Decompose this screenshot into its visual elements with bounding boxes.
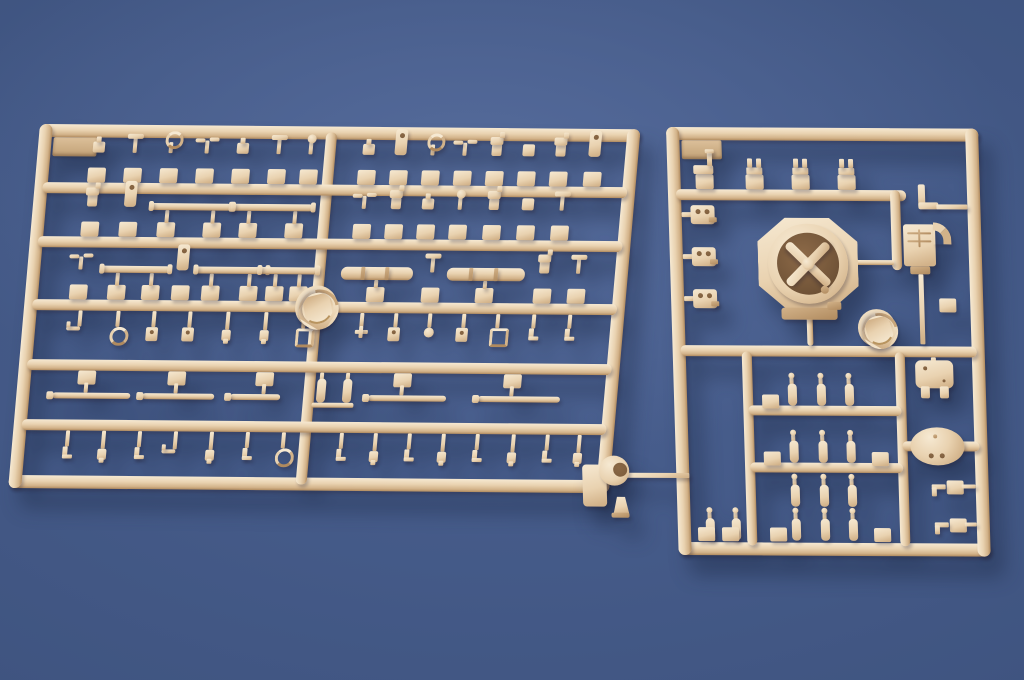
- plastic-piece: [230, 202, 236, 212]
- plastic-piece: [593, 134, 598, 139]
- part-tab: [239, 286, 258, 301]
- part-tab: [791, 175, 809, 190]
- plastic-piece: [438, 461, 443, 466]
- part-tab: [265, 286, 284, 301]
- part-stem: [137, 431, 142, 447]
- part-cylinder: [818, 441, 828, 463]
- part-tab: [201, 286, 220, 301]
- plastic-piece: [399, 385, 404, 395]
- sprue-rail: [965, 129, 991, 557]
- sprue-rail: [676, 189, 906, 201]
- plastic-piece: [942, 379, 945, 382]
- part-cylinder: [821, 519, 831, 541]
- part-tab: [365, 287, 384, 302]
- part-cylinder: [791, 485, 801, 507]
- plastic-piece: [366, 139, 372, 145]
- plastic-piece: [134, 455, 144, 459]
- part-stem: [531, 314, 536, 328]
- part-mantlet-muzzle: [613, 463, 627, 477]
- plastic-piece: [500, 132, 506, 138]
- plastic-piece: [710, 259, 718, 264]
- part-tab: [566, 289, 585, 304]
- part-tab: [299, 169, 318, 184]
- part-tab: [202, 222, 221, 237]
- plastic-piece: [86, 187, 100, 195]
- plastic-piece: [78, 256, 83, 269]
- plastic-piece: [294, 328, 315, 347]
- part-stem: [510, 434, 516, 452]
- plastic-piece: [362, 196, 367, 209]
- part-tab: [141, 285, 160, 300]
- right-sprue-frame: [666, 127, 991, 557]
- plastic-piece: [483, 281, 488, 289]
- part-cylinder: [788, 384, 798, 406]
- part-cylinder: [849, 519, 859, 541]
- plastic-piece: [274, 448, 295, 467]
- part-gun-barrel: [52, 392, 130, 399]
- part-stem: [544, 435, 549, 451]
- plastic-piece: [564, 133, 570, 139]
- plastic-piece: [555, 145, 566, 157]
- part-tab: [550, 226, 569, 241]
- part-stem: [440, 434, 446, 452]
- part-stem: [475, 434, 480, 450]
- part-tab: [357, 170, 376, 185]
- plastic-piece: [66, 321, 71, 327]
- plastic-piece: [705, 149, 714, 153]
- part-tab: [516, 225, 535, 240]
- plastic-piece: [802, 159, 807, 168]
- part-stem: [281, 432, 286, 448]
- plastic-piece: [706, 293, 711, 298]
- plastic-piece: [508, 461, 513, 466]
- plastic-piece: [696, 251, 701, 256]
- part-stem: [77, 310, 82, 326]
- plastic-piece: [611, 513, 629, 518]
- part-bar: [232, 204, 313, 212]
- plastic-piece: [847, 430, 853, 436]
- part-cylinder: [789, 441, 799, 463]
- plastic-piece: [791, 474, 797, 480]
- plastic-piece: [167, 264, 173, 274]
- plastic-piece: [242, 456, 252, 460]
- part-tab: [69, 284, 88, 299]
- plastic-piece: [706, 507, 712, 513]
- plastic-piece: [487, 191, 501, 199]
- plastic-piece: [935, 525, 940, 534]
- part-tab: [107, 285, 126, 300]
- part-tab: [872, 452, 889, 466]
- part-tab: [118, 222, 137, 237]
- part-gun-barrel: [142, 393, 214, 400]
- plastic-piece: [308, 142, 313, 154]
- part-dome: [910, 427, 965, 465]
- plastic-piece: [528, 336, 538, 340]
- part-tab: [80, 221, 99, 236]
- plastic-piece: [940, 386, 949, 398]
- sprue-rail: [21, 419, 607, 435]
- plastic-piece: [821, 508, 827, 514]
- plastic-piece: [181, 248, 186, 253]
- part-tab: [837, 175, 855, 190]
- part-tab: [420, 287, 439, 302]
- plastic-piece: [788, 373, 794, 379]
- plastic-piece: [928, 453, 933, 458]
- sprue-rail: [742, 351, 758, 545]
- plastic-piece: [910, 266, 930, 274]
- part-cylinder: [845, 384, 855, 406]
- part-tab: [482, 225, 501, 240]
- part-tab: [453, 171, 472, 186]
- plastic-piece: [165, 131, 185, 149]
- plastic-piece: [224, 393, 232, 401]
- plastic-piece: [425, 193, 431, 199]
- plastic-piece: [423, 328, 434, 338]
- plastic-piece: [732, 507, 738, 513]
- plastic-piece: [819, 430, 825, 436]
- plastic-piece: [792, 168, 808, 175]
- plastic-piece: [193, 264, 199, 274]
- plastic-piece: [87, 194, 98, 206]
- plastic-piece: [521, 198, 534, 210]
- part-stem: [173, 431, 179, 449]
- part-stem: [918, 274, 925, 344]
- part-tab: [583, 172, 602, 187]
- plastic-piece: [390, 190, 404, 198]
- plastic-piece: [574, 462, 579, 467]
- plastic-piece: [136, 392, 144, 400]
- plastic-piece: [310, 202, 316, 212]
- part-gun-barrel: [230, 394, 280, 400]
- part-tab: [267, 169, 286, 184]
- part-tab: [156, 222, 175, 237]
- part-pipe: [340, 267, 413, 281]
- plastic-piece: [109, 327, 130, 346]
- plastic-piece: [845, 373, 851, 379]
- part-tab: [421, 170, 440, 185]
- plastic-piece: [817, 373, 823, 379]
- part-tab: [517, 171, 536, 186]
- plastic-piece: [923, 366, 927, 370]
- part-stem: [567, 315, 572, 329]
- part-stem: [245, 432, 250, 448]
- plastic-piece: [921, 386, 930, 398]
- part-stem: [209, 432, 215, 450]
- part-pipe: [446, 268, 525, 282]
- plastic-piece: [204, 140, 209, 153]
- plastic-piece: [427, 133, 447, 151]
- plastic-piece: [746, 167, 762, 174]
- plastic-piece: [548, 250, 554, 256]
- plastic-piece: [98, 458, 103, 463]
- plastic-piece: [490, 137, 504, 145]
- plastic-piece: [509, 386, 514, 396]
- plastic-piece: [497, 186, 503, 192]
- plastic-piece: [430, 258, 435, 273]
- plastic-piece: [467, 140, 477, 144]
- sprue-rail: [37, 236, 623, 252]
- part-bar: [101, 266, 170, 274]
- part-tab: [352, 224, 371, 239]
- plastic-piece: [555, 192, 571, 197]
- plastic-piece: [848, 474, 854, 480]
- plastic-piece: [522, 144, 535, 156]
- part-tab: [474, 288, 493, 303]
- plastic-piece: [206, 459, 211, 464]
- plastic-piece: [307, 134, 317, 143]
- plastic-piece: [539, 261, 550, 273]
- part-stem: [115, 311, 120, 327]
- part-tab: [722, 527, 739, 541]
- part-stem: [101, 431, 107, 449]
- plastic-piece: [747, 158, 752, 167]
- part-cylinder: [846, 441, 856, 463]
- sprue-letter-tab: [681, 140, 722, 159]
- plastic-piece: [697, 293, 702, 298]
- part-tab: [532, 288, 551, 303]
- plastic-piece: [99, 264, 105, 274]
- plastic-piece: [93, 141, 106, 152]
- plastic-piece: [62, 454, 72, 458]
- plastic-piece: [456, 189, 466, 198]
- plastic-piece: [462, 143, 467, 156]
- part-tab: [171, 285, 190, 300]
- part-tab: [764, 451, 781, 465]
- plastic-piece: [353, 194, 363, 198]
- plastic-piece: [391, 197, 402, 209]
- part-tab: [770, 527, 787, 541]
- plastic-piece: [820, 474, 826, 480]
- part-tab: [87, 167, 106, 182]
- plastic-piece: [399, 185, 405, 191]
- part-stem: [151, 311, 156, 327]
- plastic-piece: [83, 253, 93, 257]
- sprue-rail: [890, 190, 902, 270]
- part-cylinder: [817, 384, 827, 406]
- part-tab: [238, 223, 257, 238]
- plastic-piece: [367, 193, 377, 197]
- plastic-piece: [827, 302, 841, 310]
- plastic-piece: [173, 383, 178, 393]
- plastic-piece: [939, 453, 944, 458]
- plastic-piece: [693, 165, 713, 174]
- part-stem: [359, 313, 364, 327]
- plastic-piece: [471, 458, 481, 462]
- part-stem: [407, 433, 412, 449]
- part-stem: [225, 312, 231, 330]
- plastic-piece: [933, 434, 937, 438]
- plastic-piece: [95, 183, 101, 189]
- part-tab: [745, 174, 763, 189]
- plastic-piece: [272, 135, 288, 140]
- plastic-piece: [491, 144, 502, 156]
- plastic-piece: [148, 201, 154, 211]
- part-bar: [150, 203, 231, 211]
- plastic-piece: [571, 255, 587, 260]
- part-stem: [936, 204, 967, 209]
- sprue-rail: [854, 260, 894, 265]
- plastic-piece: [223, 339, 228, 344]
- part-tab: [874, 528, 891, 542]
- part-tab: [384, 224, 403, 239]
- part-stem: [263, 312, 269, 330]
- plastic-piece: [559, 196, 564, 211]
- plastic-piece: [838, 168, 854, 175]
- part-tab: [695, 174, 713, 189]
- plastic-piece: [336, 457, 346, 461]
- plastic-piece: [257, 265, 263, 275]
- plastic-piece: [472, 395, 480, 403]
- photo-scene: [0, 0, 1024, 680]
- plastic-piece: [576, 259, 581, 274]
- part-tab: [284, 223, 303, 238]
- plastic-piece: [704, 209, 709, 214]
- part-cylinder: [820, 485, 830, 507]
- plastic-piece: [564, 337, 574, 341]
- right-sprue: [666, 127, 978, 555]
- plastic-piece: [821, 286, 829, 294]
- part-tab: [485, 171, 504, 186]
- plastic-piece: [458, 198, 463, 210]
- part-stem: [372, 433, 378, 451]
- plastic-piece: [399, 133, 404, 138]
- part-bar: [259, 267, 318, 275]
- plastic-piece: [195, 138, 205, 142]
- part-cylinder: [848, 485, 858, 507]
- part-stem: [393, 313, 398, 327]
- part-tab: [195, 168, 214, 183]
- plastic-piece: [839, 159, 844, 168]
- part-stem: [339, 433, 344, 449]
- plastic-piece: [422, 198, 435, 209]
- plastic-piece: [711, 301, 719, 306]
- left-sprue: [40, 124, 641, 488]
- plastic-piece: [370, 460, 375, 465]
- plastic-piece: [709, 217, 717, 222]
- plastic-piece: [962, 484, 976, 488]
- plastic-piece: [128, 134, 144, 139]
- part-tab: [389, 170, 408, 185]
- plastic-piece: [425, 253, 441, 258]
- plastic-piece: [695, 209, 700, 214]
- plastic-piece: [932, 487, 937, 496]
- part-tab: [231, 169, 250, 184]
- plastic-piece: [848, 159, 853, 168]
- part-stem: [187, 311, 192, 327]
- part-tab: [416, 224, 435, 239]
- part-stem: [576, 435, 582, 453]
- part-gun-barrel: [368, 395, 446, 402]
- part-tab: [939, 298, 956, 312]
- plastic-piece: [404, 457, 414, 461]
- sprue-rail: [680, 345, 976, 358]
- part-stem: [427, 314, 432, 328]
- part-tab: [762, 394, 779, 408]
- plastic-piece: [362, 394, 370, 402]
- part-stem: [626, 473, 689, 478]
- plastic-piece: [849, 508, 855, 514]
- plastic-piece: [793, 159, 798, 168]
- plastic-piece: [965, 522, 977, 526]
- plastic-piece: [316, 379, 327, 403]
- plastic-piece: [792, 508, 798, 514]
- plastic-piece: [261, 339, 266, 344]
- plastic-piece: [261, 384, 266, 394]
- sprue-rail: [8, 475, 610, 493]
- part-gearbox: [915, 360, 954, 388]
- plastic-piece: [236, 143, 249, 154]
- part-tab: [698, 527, 715, 541]
- turret-ring-hub: [802, 258, 814, 270]
- left-sprue-frame: [8, 124, 640, 493]
- plastic-piece: [554, 138, 568, 146]
- plastic-piece: [276, 139, 281, 154]
- plastic-piece: [790, 430, 796, 436]
- plastic-piece: [374, 280, 379, 288]
- plastic-piece: [240, 138, 246, 144]
- plastic-piece: [489, 198, 500, 210]
- plastic-piece: [84, 383, 89, 393]
- part-tab: [159, 168, 178, 183]
- sprue-letter-tab: [52, 137, 98, 156]
- part-stem: [495, 314, 500, 328]
- part-tab: [549, 171, 568, 186]
- plastic-piece: [209, 137, 219, 141]
- plastic-piece: [342, 379, 353, 403]
- sprue-rail: [678, 542, 990, 557]
- plastic-piece: [705, 251, 710, 256]
- part-stem: [461, 314, 466, 328]
- plastic-piece: [46, 391, 54, 399]
- plastic-piece: [358, 326, 363, 338]
- part-hook-horn: [933, 222, 952, 244]
- plastic-piece: [161, 444, 166, 450]
- part-cylinder: [792, 519, 802, 541]
- plastic-piece: [96, 137, 102, 143]
- plastic-piece: [362, 144, 375, 155]
- plastic-piece: [315, 266, 321, 276]
- plastic-piece: [129, 184, 134, 189]
- part-axle: [311, 403, 353, 408]
- plastic-piece: [756, 158, 761, 167]
- part-gun-barrel: [478, 396, 560, 403]
- plastic-piece: [453, 141, 463, 145]
- plastic-piece: [132, 138, 137, 153]
- plastic-piece: [707, 151, 712, 166]
- part-stem: [65, 430, 70, 446]
- plastic-piece: [489, 328, 510, 347]
- plastic-piece: [541, 459, 551, 463]
- part-tab: [448, 225, 467, 240]
- plastic-piece: [538, 254, 552, 262]
- plastic-piece: [69, 254, 79, 258]
